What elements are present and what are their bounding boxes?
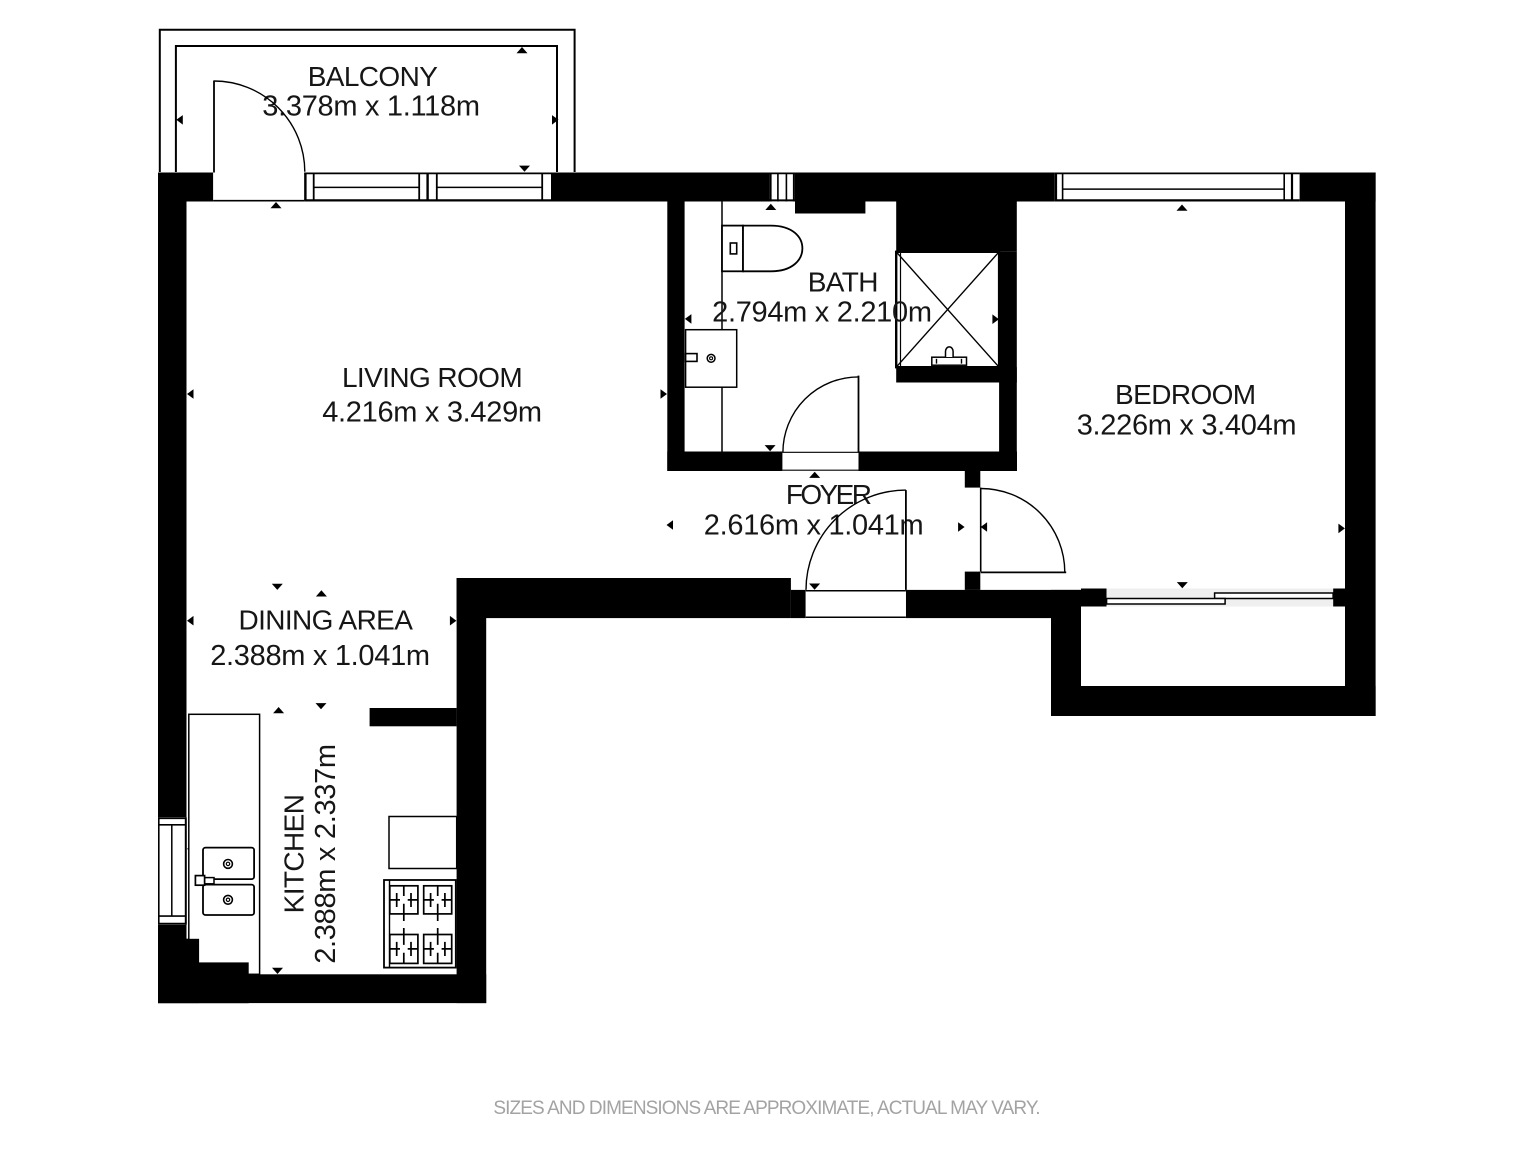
svg-text:4.216m x 3.429m: 4.216m x 3.429m [322,396,542,428]
svg-text:SIZES AND DIMENSIONS ARE APPRO: SIZES AND DIMENSIONS ARE APPROXIMATE, AC… [493,1098,1039,1119]
svg-text:DINING AREA: DINING AREA [238,605,413,636]
svg-text:3.226m x 3.404m: 3.226m x 3.404m [1077,409,1297,441]
svg-text:KITCHEN: KITCHEN [279,795,310,914]
svg-text:2.388m x 2.337m: 2.388m x 2.337m [310,744,342,964]
svg-text:2.388m x 1.041m: 2.388m x 1.041m [210,640,430,672]
svg-text:2.794m x 2.210m: 2.794m x 2.210m [712,296,932,328]
svg-text:LIVING ROOM: LIVING ROOM [342,362,522,393]
svg-text:BEDROOM: BEDROOM [1115,379,1255,410]
svg-text:FOYER: FOYER [786,479,871,510]
svg-text:BATH: BATH [808,267,878,298]
svg-text:3.378m x 1.118m: 3.378m x 1.118m [262,91,479,123]
svg-text:BALCONY: BALCONY [308,61,439,92]
svg-text:2.616m x 1.041m: 2.616m x 1.041m [704,509,924,541]
